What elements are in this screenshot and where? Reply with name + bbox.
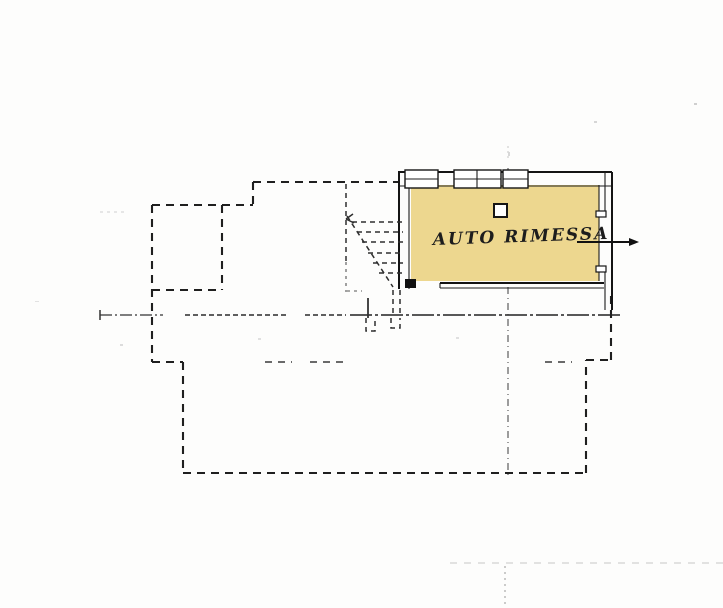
noise-speck [694,103,697,105]
stair-stringer-diagonal [347,216,393,287]
floor-plan-canvas: AUTO RIMESSA [0,0,723,608]
entrance-arrow-head [629,238,639,246]
pillar-filled [405,279,416,288]
stair-direction-arrow [346,214,354,223]
door-jamb [596,211,606,217]
landing-step-below [391,318,400,328]
window-symbols [405,170,528,188]
noise-speck [120,344,123,346]
stairs-symbol [346,184,403,331]
flue-symbol [494,204,507,217]
scanned-floor-plan-page: AUTO RIMESSA [0,0,723,608]
landing-step-below [366,318,375,331]
section-line [100,310,620,320]
noise-speck [35,301,39,302]
noise-speck [594,121,597,123]
noise-speck [456,337,459,339]
noise-speck [508,152,510,156]
inner-room-outline-dashed [152,205,222,290]
noise-speck [258,338,261,340]
garage-unit: AUTO RIMESSA [398,170,612,310]
door-jamb [596,266,606,272]
